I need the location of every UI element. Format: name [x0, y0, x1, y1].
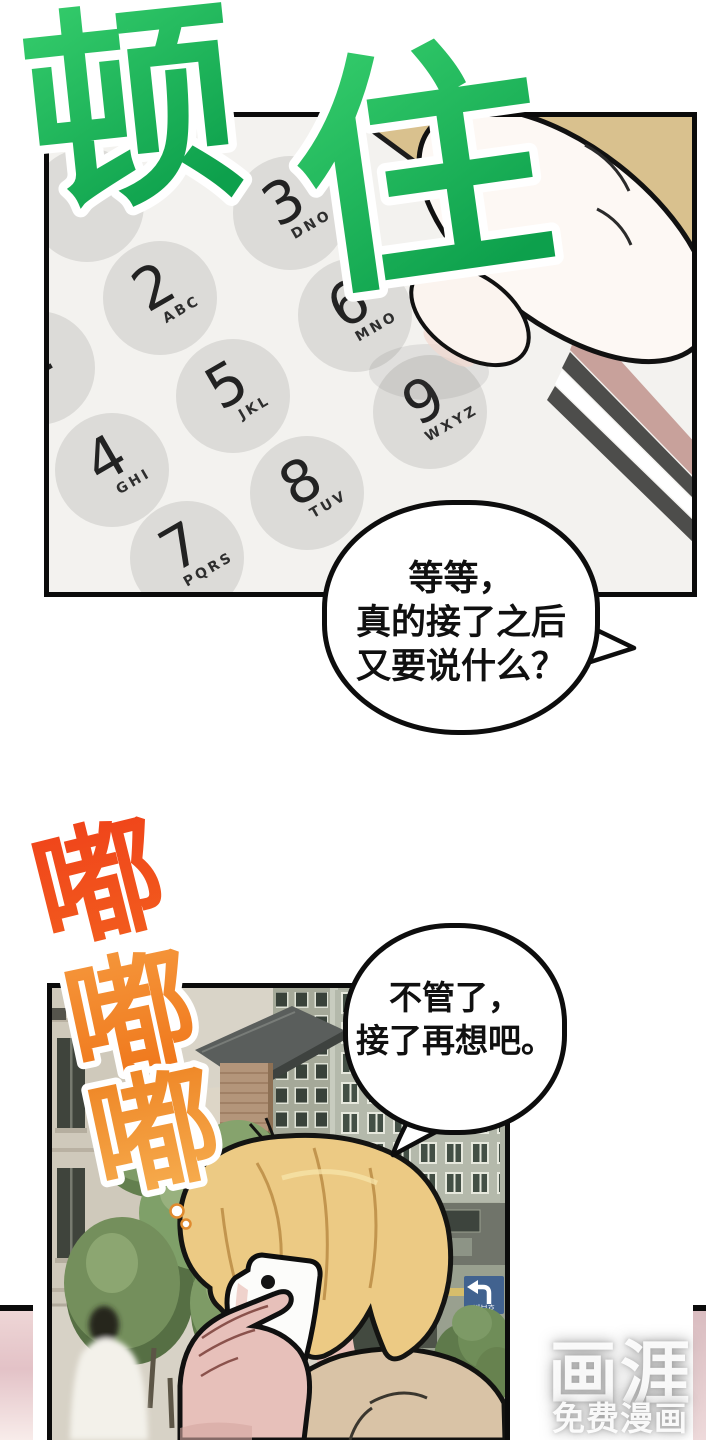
sfx-ring-char-1: 嘟: [19, 815, 179, 973]
speech-bubble-2: 不管了， 接了再想吧。: [343, 923, 567, 1135]
bubble1-line2: 真的接了之后: [327, 601, 595, 645]
wall-lamp: [52, 1008, 66, 1020]
bubble1-line3: 又要说什么？: [327, 645, 595, 689]
watermark-tagline: 免费漫画: [550, 1392, 690, 1440]
window-frame: [70, 1168, 73, 1258]
next-panel-fragment-right: [693, 1305, 706, 1440]
ring-dot: [171, 1205, 184, 1218]
speech-bubble-1: 等等， 真的接了之后 又要说什么？: [322, 500, 600, 735]
bubble2-text: 不管了， 接了再想吧。: [348, 976, 562, 1062]
bubble2-line1: 不管了，: [348, 976, 562, 1019]
bubble2-line2: 接了再想吧。: [348, 1019, 562, 1062]
bubble1-text: 等等， 真的接了之后 又要说什么？: [327, 557, 595, 689]
phone-camera-dot: [261, 1275, 275, 1289]
window-sill: [55, 1128, 87, 1133]
phone-finger-art: [49, 117, 692, 592]
ring-dot: [182, 1220, 191, 1229]
phone-edge-detail-line: [96, 117, 99, 158]
next-panel-fragment-left: [0, 1305, 33, 1440]
window-frame: [70, 1038, 73, 1128]
comic-page: 1 2 ABC 3 DNO 4 GHI 5 JKL 6 MNO 7 PQRS 8…: [0, 0, 706, 1440]
bubble1-line1: 等等，: [327, 557, 595, 601]
